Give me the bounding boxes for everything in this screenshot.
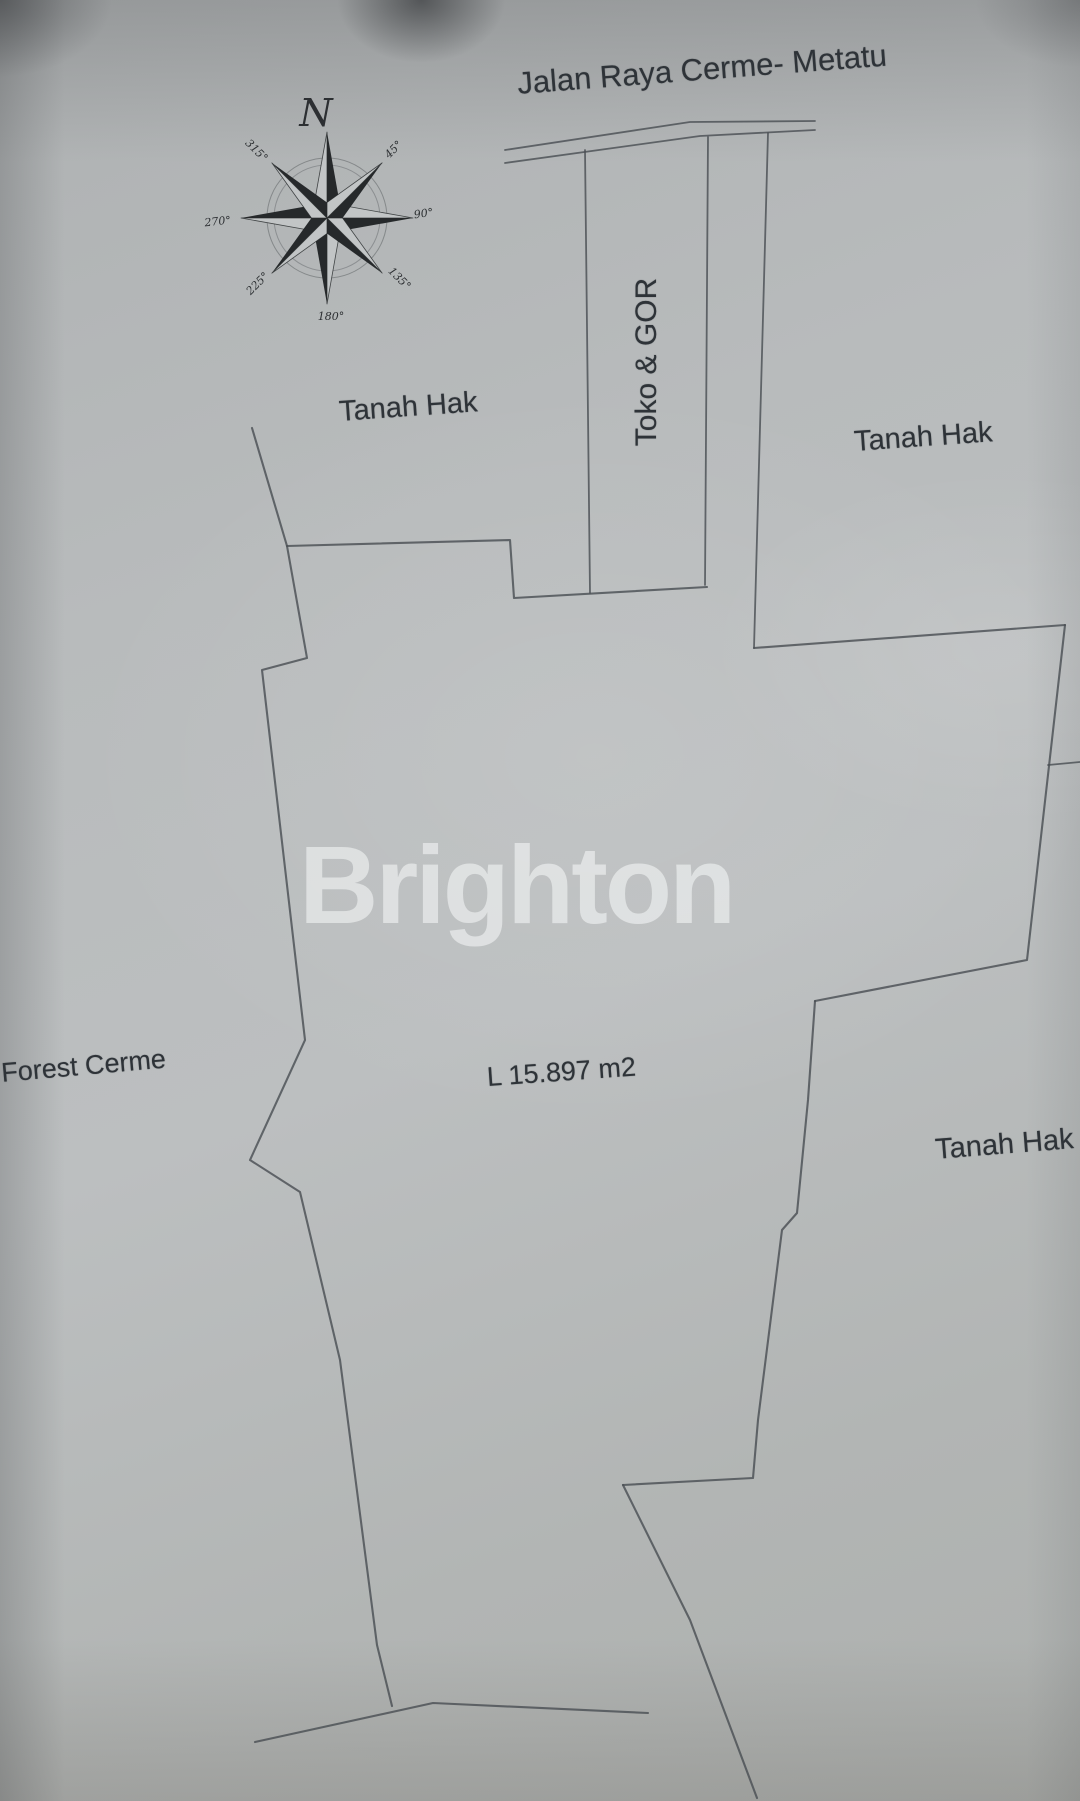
plot-right-boundary-lower bbox=[623, 1001, 815, 1485]
compass-north-label: N bbox=[298, 91, 334, 135]
plot-right-lobe-top-edge bbox=[754, 625, 1065, 648]
plot-bottom-right-diagonal bbox=[623, 1485, 757, 1798]
brighton-watermark: Brighton bbox=[299, 822, 733, 949]
toko-gor-strip-right-line bbox=[705, 137, 708, 585]
compass-degree-180: 180° bbox=[318, 310, 345, 323]
right-edge-branch-line bbox=[1048, 762, 1080, 765]
plot-right-boundary-upper bbox=[815, 625, 1065, 1001]
compass-degree-225: 225° bbox=[243, 270, 272, 299]
compass-degree-90: 90° bbox=[413, 206, 434, 222]
compass-degree-45: 45° bbox=[381, 138, 405, 162]
compass-degree-270: 270° bbox=[203, 214, 232, 230]
plot-top-edge bbox=[287, 540, 707, 598]
plot-left-boundary bbox=[250, 428, 392, 1706]
toko-gor-label: Toko & GOR bbox=[630, 278, 664, 446]
toko-gor-strip-left-line bbox=[585, 150, 590, 593]
right-parcel-divider-line bbox=[754, 133, 768, 648]
compass-degree-315: 315° bbox=[243, 137, 271, 165]
compass-degree-135: 135° bbox=[386, 265, 414, 293]
plot-bottom-edge bbox=[255, 1703, 648, 1742]
